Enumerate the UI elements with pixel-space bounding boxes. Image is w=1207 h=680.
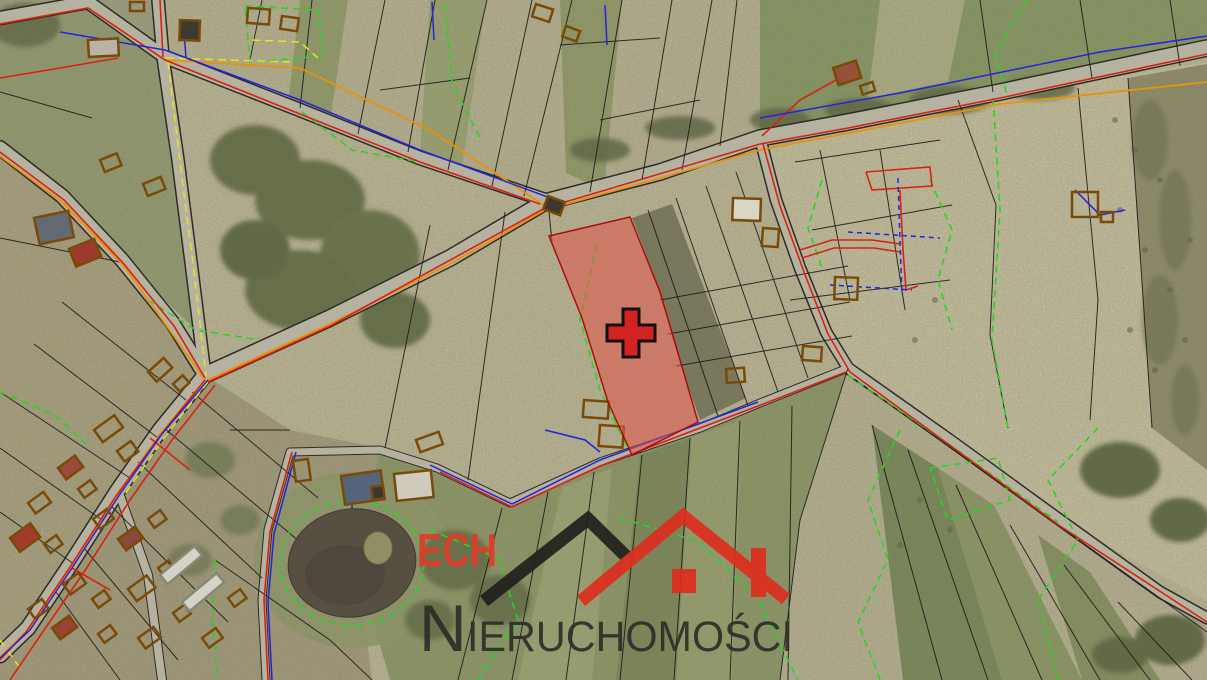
brand-name-initial: N	[419, 591, 467, 665]
building	[371, 485, 385, 500]
map-canvas[interactable]: ECH N IERUCHOMOŚCI	[0, 0, 1207, 680]
building	[88, 38, 119, 57]
map-screenshot: ECH N IERUCHOMOŚCI	[0, 0, 1207, 680]
brand-ech-text: ECH	[417, 524, 497, 576]
building	[732, 198, 761, 221]
building	[394, 470, 434, 501]
logo-chimney	[751, 548, 766, 597]
building	[34, 211, 74, 245]
logo-window	[672, 569, 696, 593]
pond-island	[364, 532, 392, 564]
brand-name-text: IERUCHOMOŚCI	[467, 612, 793, 661]
building	[179, 20, 200, 41]
